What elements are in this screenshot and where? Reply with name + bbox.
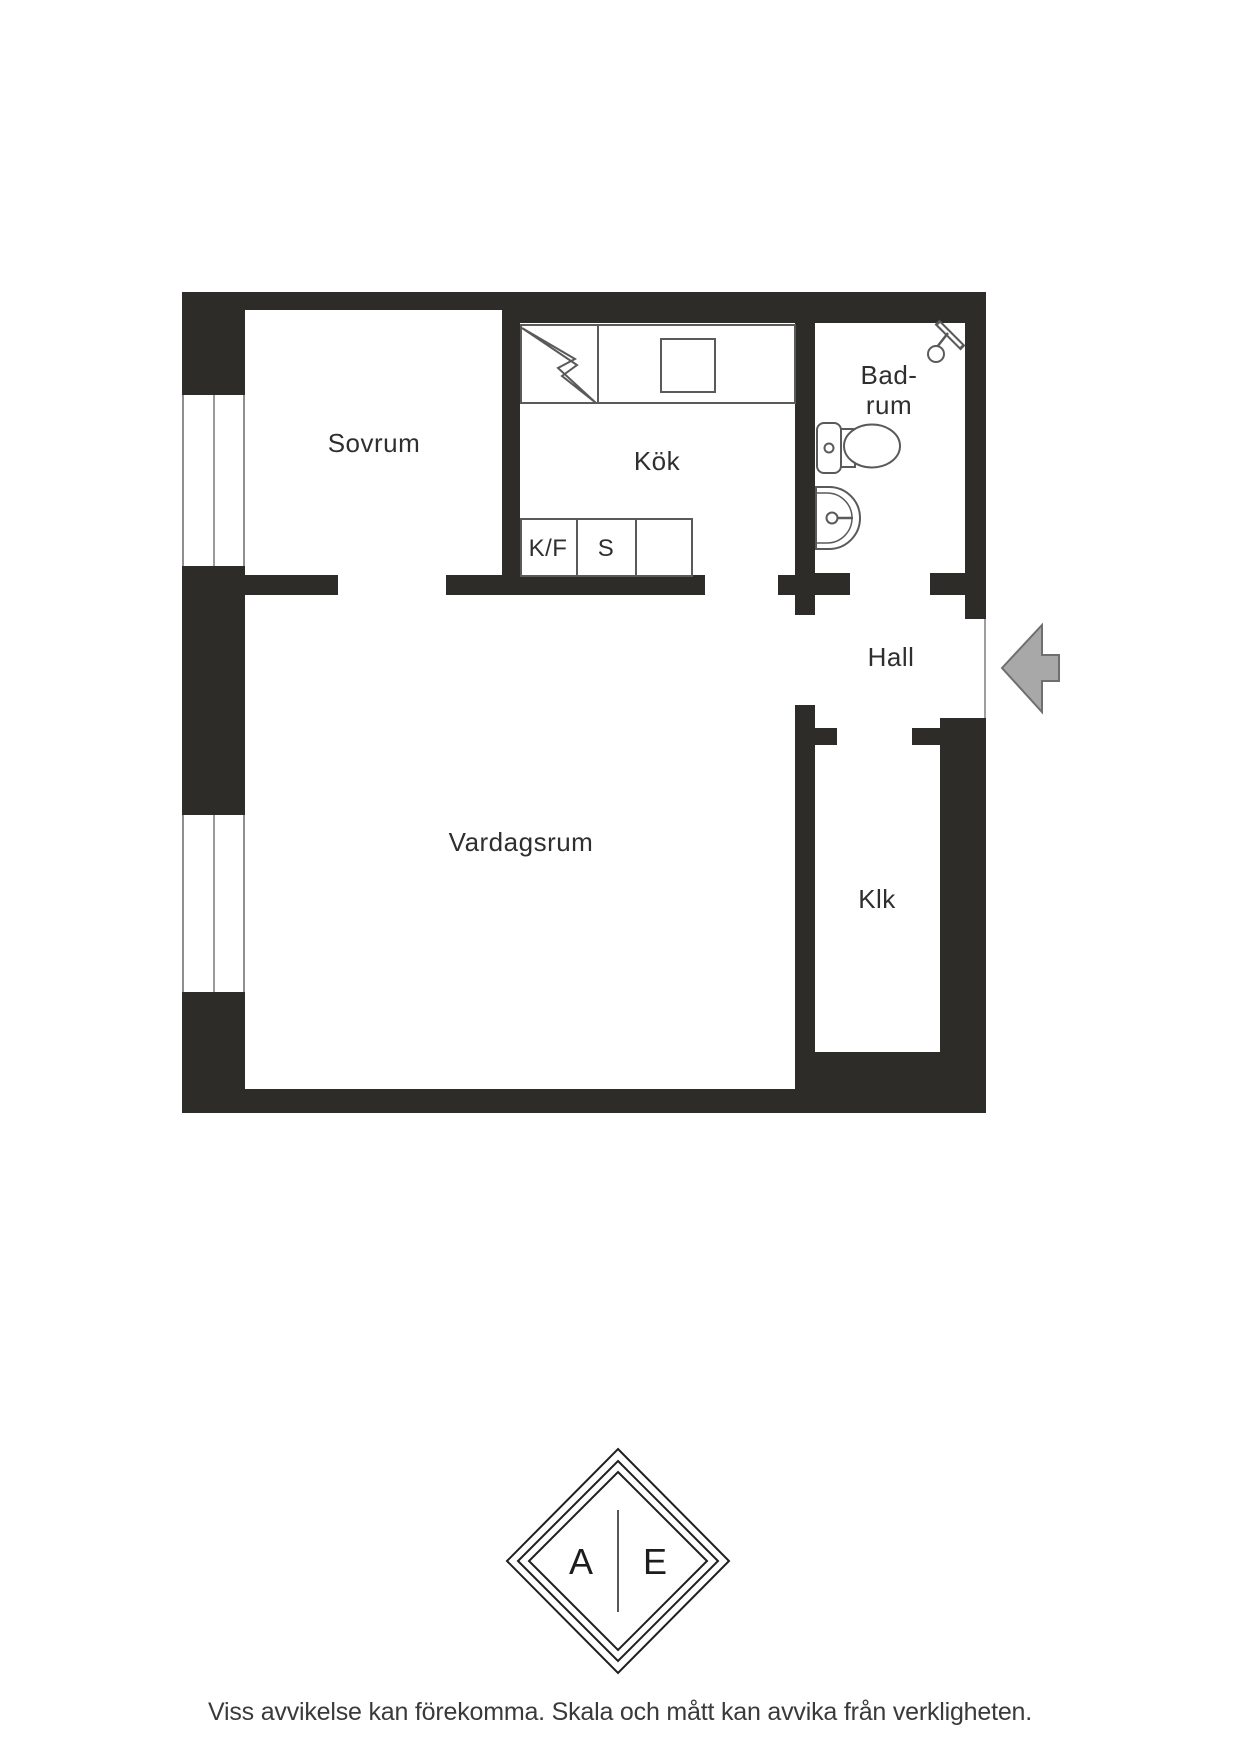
room-label-badrum: Bad- rum [861,360,918,420]
entrance-arrow-icon [1000,622,1062,716]
agency-logo-diamond [505,1447,731,1675]
room-label-badrum-line2: rum [861,390,918,420]
wall-segment [446,575,705,595]
wall-segment [182,292,245,395]
disclaimer-text: Viss avvikelse kan förekomma. Skala och … [0,1698,1240,1727]
sink-icon [815,486,869,551]
counter-label-stove: S [598,535,615,563]
wall-segment [912,728,940,745]
wall-segment [815,573,850,595]
wall-segment [930,573,965,595]
kitchen-sink-square [660,338,716,393]
wall-segment [182,566,245,815]
entrance-threshold-line [984,619,986,718]
room-label-kok: Kök [634,446,680,476]
lightning-icon [520,324,598,404]
room-label-vardagsrum: Vardagsrum [449,827,594,857]
logo-letter-a: A [569,1541,593,1583]
counter-divider [635,518,637,577]
room-label-sovrum: Sovrum [328,428,421,458]
window [182,815,245,992]
wall-segment [502,292,986,323]
toilet-icon [815,420,905,476]
counter-divider [576,518,578,577]
room-label-klk: Klk [858,884,896,914]
wall-segment [182,1089,986,1113]
floor-plan-page: Sovrum Kök Bad- rum Hall Vardagsrum Klk … [0,0,1240,1754]
room-label-badrum-line1: Bad- [861,360,918,390]
wall-segment [502,310,520,595]
wall-segment [245,575,338,595]
counter-label-fridge-freezer: K/F [529,535,568,563]
wall-segment [815,728,837,745]
window-mullion [213,395,215,566]
shower-icon [927,316,971,366]
room-label-hall: Hall [868,642,915,672]
logo-letter-e: E [643,1541,667,1583]
wall-segment [778,575,795,595]
window-mullion [213,815,215,992]
window [182,395,245,566]
wall-segment [795,705,815,1090]
wall-segment [795,310,815,615]
